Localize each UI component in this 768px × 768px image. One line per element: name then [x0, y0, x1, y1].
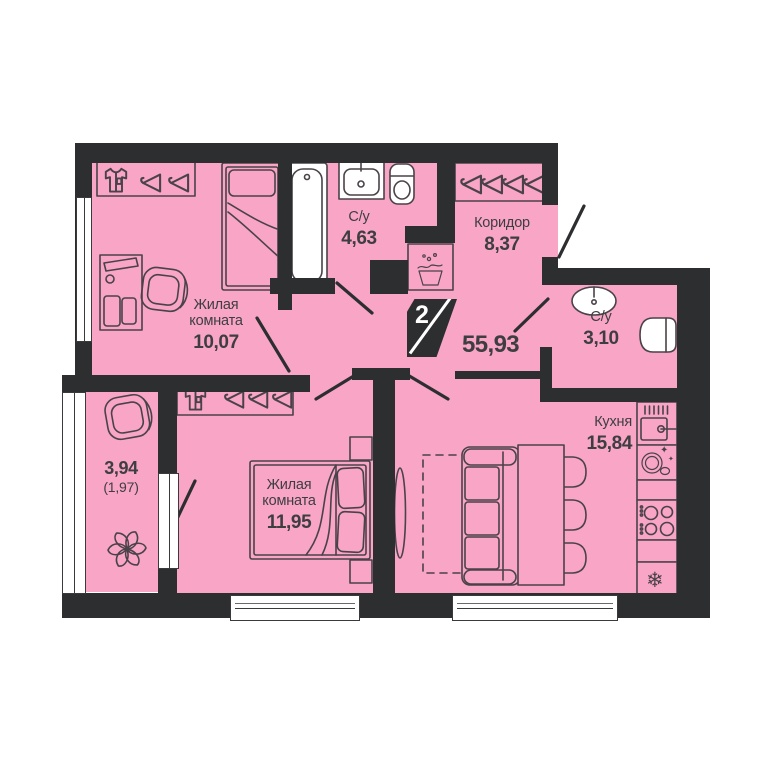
badge-flag-icon: 2 — [407, 299, 457, 357]
label-living-2: Жилая комната 11,95 — [247, 478, 331, 534]
armchair-icon — [103, 392, 155, 441]
room-name: Кухня — [552, 415, 632, 431]
label-balcony: 3,94 (1,97) — [86, 456, 156, 495]
wall-segment — [373, 368, 395, 598]
toilet-side-icon — [640, 318, 676, 352]
sofa-icon — [423, 447, 520, 585]
room-name: Коридор — [460, 216, 544, 232]
label-corridor: Коридор 8,37 — [460, 216, 544, 256]
rooms-count-badge: 2 — [407, 299, 457, 357]
washing-machine-icon — [408, 244, 453, 290]
room-area: 11,95 — [247, 512, 331, 534]
wall-segment — [405, 226, 455, 243]
label-living-1: Жилая комната 10,07 — [174, 298, 258, 354]
wall-segment — [677, 268, 710, 618]
room-area-secondary: (1,97) — [86, 479, 156, 495]
room-name: Жилая комната — [174, 298, 258, 330]
room-area: 10,07 — [174, 332, 258, 354]
room-name: С/у — [566, 310, 636, 326]
sink-icon — [339, 162, 384, 199]
wall-segment — [542, 257, 558, 285]
wall-segment — [370, 260, 408, 294]
label-kitchen: Кухня 15,84 — [552, 415, 632, 455]
room-area: 15,84 — [552, 433, 632, 455]
label-bathroom-2: С/у 3,10 — [566, 310, 636, 350]
room-area: 3,10 — [566, 328, 636, 350]
toilet-icon — [390, 164, 414, 204]
balcony-window — [62, 392, 86, 594]
wall-segment — [540, 388, 677, 402]
wardrobe-icon — [97, 162, 195, 196]
single-bed-icon — [222, 163, 282, 290]
balcony-door-window — [158, 473, 179, 569]
window — [230, 595, 360, 621]
wall-segment — [75, 143, 558, 163]
sparkle-icon: ✦ — [668, 456, 674, 463]
desk-icon — [100, 255, 142, 330]
room-name: Жилая комната — [247, 478, 331, 510]
bathtub-icon — [287, 163, 327, 289]
dining-table-icon — [518, 445, 586, 585]
label-bathroom-1: С/у 4,63 — [324, 210, 394, 250]
wall-segment — [455, 371, 545, 379]
wall-segment — [542, 268, 693, 285]
room-area: 8,37 — [460, 234, 544, 256]
plant-icon — [108, 530, 146, 569]
total-area: 55,93 — [462, 331, 519, 359]
room-area: 3,94 — [86, 458, 156, 479]
wall-segment — [62, 375, 310, 392]
window — [76, 197, 92, 342]
window — [452, 595, 618, 621]
tv-icon — [395, 468, 406, 558]
wall-segment — [542, 143, 558, 205]
room-name: С/у — [324, 210, 394, 226]
room-area: 4,63 — [324, 228, 394, 250]
rooms-count: 2 — [415, 301, 429, 330]
floor-plan: Жилая комната 10,07 С/у 4,63 Коридор 8,3… — [0, 0, 768, 768]
coat-rack-icon — [455, 163, 544, 201]
wall-segment — [437, 143, 455, 228]
snowflake-icon: ❄ — [646, 570, 664, 591]
wall-segment — [278, 160, 292, 310]
